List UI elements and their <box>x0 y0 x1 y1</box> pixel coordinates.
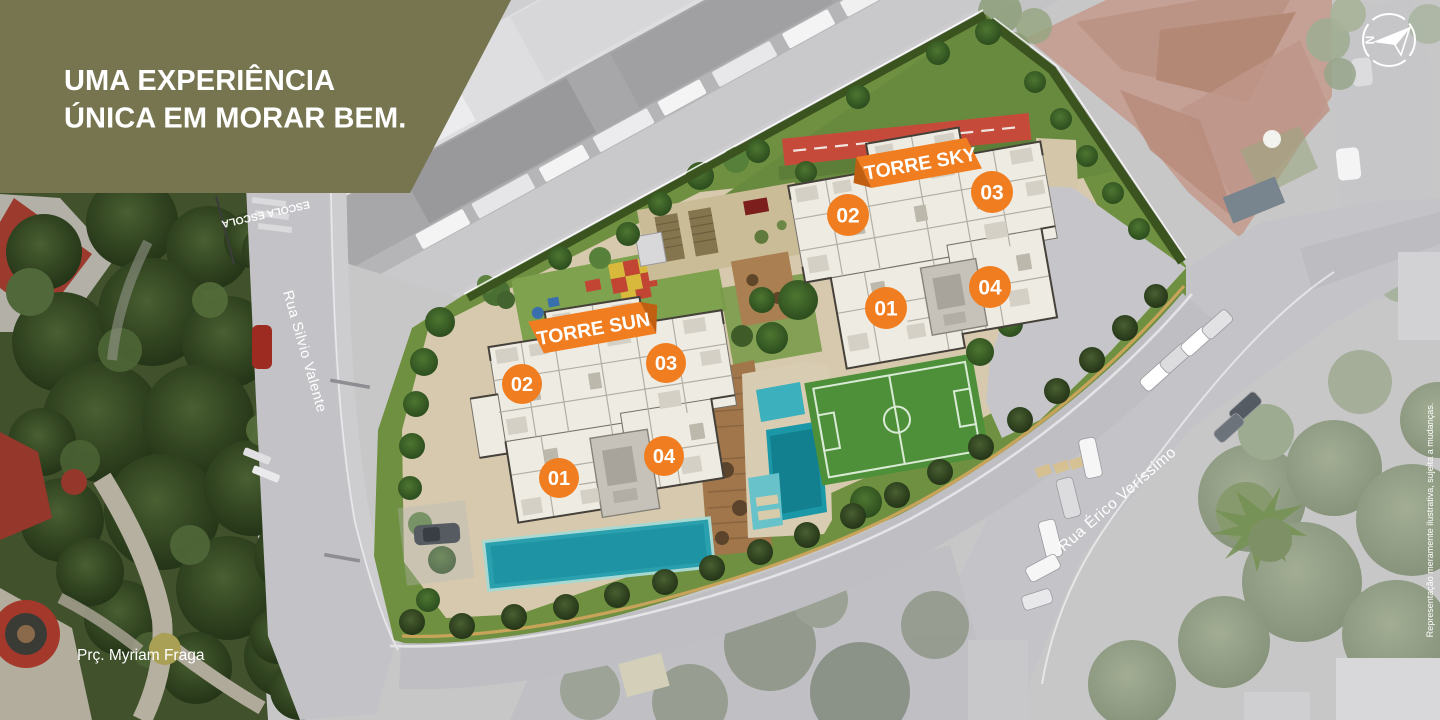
svg-text:04: 04 <box>978 277 1002 300</box>
svg-text:03: 03 <box>980 182 1003 205</box>
svg-text:02: 02 <box>511 374 533 396</box>
svg-text:01: 01 <box>548 468 570 490</box>
svg-text:03: 03 <box>655 353 677 375</box>
svg-text:02: 02 <box>836 205 859 228</box>
svg-text:01: 01 <box>874 298 898 321</box>
svg-text:N: N <box>1363 36 1377 45</box>
svg-text:Prç. Myriam Fraga: Prç. Myriam Fraga <box>77 647 205 664</box>
svg-text:04: 04 <box>653 446 676 468</box>
svg-text:Representação meramente ilustr: Representação meramente ilustrativa, suj… <box>1425 403 1435 638</box>
svg-text:UMA EXPERIÊNCIA: UMA EXPERIÊNCIA <box>64 63 335 97</box>
svg-text:ÚNICA EM MORAR BEM.: ÚNICA EM MORAR BEM. <box>64 101 406 135</box>
